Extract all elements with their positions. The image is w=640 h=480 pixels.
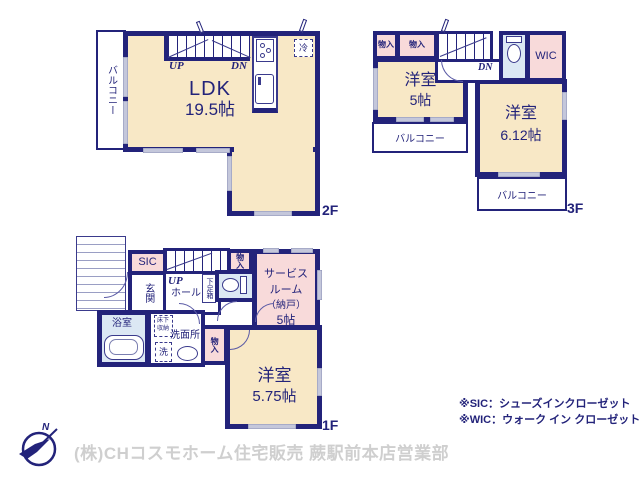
window-1f-south xyxy=(248,424,296,429)
window-2f-south2 xyxy=(196,148,230,153)
bathtub-icon xyxy=(104,335,144,360)
balcony-2f-label: バルコニー xyxy=(104,65,119,115)
floorplan-page: バルコニー UP DN 冷 LDK 19.5帖 xyxy=(0,0,640,480)
washbasin-icon xyxy=(177,346,198,361)
fridge-space: 冷 xyxy=(294,39,313,57)
toilet-3f-bowl-icon xyxy=(507,44,521,63)
window-3f-west xyxy=(373,68,378,110)
toilet-1f-bowl-icon xyxy=(222,278,239,292)
genkan-label: 玄関 xyxy=(140,276,156,310)
toilet-1f-tank-icon xyxy=(240,276,247,294)
bedroom-612-name: 洋室 xyxy=(483,105,559,123)
window-1f-east1 xyxy=(317,270,322,300)
balcony-3f-1-label: バルコニー xyxy=(395,130,445,145)
ldk-size-label: 19.5帖 xyxy=(155,100,265,120)
fridge-label: 冷 xyxy=(295,40,312,56)
dn-label-2f: DN xyxy=(231,60,247,73)
closet-3f-1-label: 物入 xyxy=(374,33,398,57)
bedroom-575-size: 5.75帖 xyxy=(233,388,316,405)
ldk-name-label: LDK xyxy=(160,78,260,101)
floor-2f-label: 2F xyxy=(322,202,338,218)
window-2f-ext-south xyxy=(254,211,292,216)
service-room-line2: ルーム xyxy=(256,284,316,297)
laundry-label: 洗 xyxy=(156,343,171,361)
bedroom-5-name: 洋室 xyxy=(383,72,458,90)
bedroom-575-patch xyxy=(252,350,264,358)
note-wic: ※WIC：ウォーク イン クローゼット xyxy=(459,412,640,430)
underfloor-line1: 床下 xyxy=(157,318,169,326)
window-3f-south1 xyxy=(396,117,424,122)
closet-1f-top-label: 物入 xyxy=(229,250,251,272)
window-2f-ext-west xyxy=(227,156,232,191)
washroom-label: 洗面所 xyxy=(170,330,200,342)
floor-1f-label: 1F xyxy=(322,417,338,433)
bedroom-5-size: 5帖 xyxy=(383,92,458,108)
service-room-line1: サービス xyxy=(256,268,316,281)
window-2f-west2 xyxy=(123,101,128,144)
closet-3f-2-label: 物入 xyxy=(398,33,436,57)
compass-icon: N xyxy=(16,424,64,472)
window-1f-north2 xyxy=(291,248,313,253)
window-1f-north1 xyxy=(263,248,279,253)
toilet-3f-tank-icon xyxy=(506,36,522,43)
up-label-1f: UP xyxy=(168,275,183,288)
wic-label: WIC xyxy=(528,33,564,79)
shoebox-label: 下足箱 xyxy=(203,275,215,302)
stove-icon xyxy=(256,39,274,62)
ldk-junction-patch xyxy=(234,144,313,156)
window-1f-east2 xyxy=(317,368,322,396)
window-3f-south3 xyxy=(498,172,540,177)
balcony-3f-2: バルコニー xyxy=(477,177,567,211)
bedroom-612-size: 6.12帖 xyxy=(483,127,559,143)
underfloor-line2: 収納 xyxy=(157,326,169,334)
compass-n-label: N xyxy=(42,422,49,434)
window-3f-south2 xyxy=(430,117,454,122)
bedroom-575-name: 洋室 xyxy=(237,366,312,386)
laundry-space: 洗 xyxy=(155,342,172,362)
dn-label-3f: DN xyxy=(478,62,492,74)
balcony-3f-1: バルコニー xyxy=(372,122,468,153)
window-2f-south1 xyxy=(143,148,183,153)
balcony-2f: バルコニー xyxy=(96,30,126,150)
bathroom-label: 浴室 xyxy=(112,318,132,330)
hall-label: ホール xyxy=(171,288,201,300)
window-3f-east xyxy=(562,92,567,120)
ldk-extension xyxy=(227,147,320,216)
balcony-3f-2-label: バルコニー xyxy=(497,187,547,202)
window-2f-west1 xyxy=(123,57,128,97)
floor-3f-label: 3F xyxy=(567,200,583,216)
closet-1f-bottom-label: 物入 xyxy=(203,328,226,362)
up-label-2f: UP xyxy=(169,60,184,73)
note-sic: ※SIC：シューズインクローゼット xyxy=(459,396,630,414)
sic-label: SIC xyxy=(130,252,165,272)
company-name: (株)CHコスモホーム住宅販売 蕨駅前本店営業部 xyxy=(74,444,449,464)
